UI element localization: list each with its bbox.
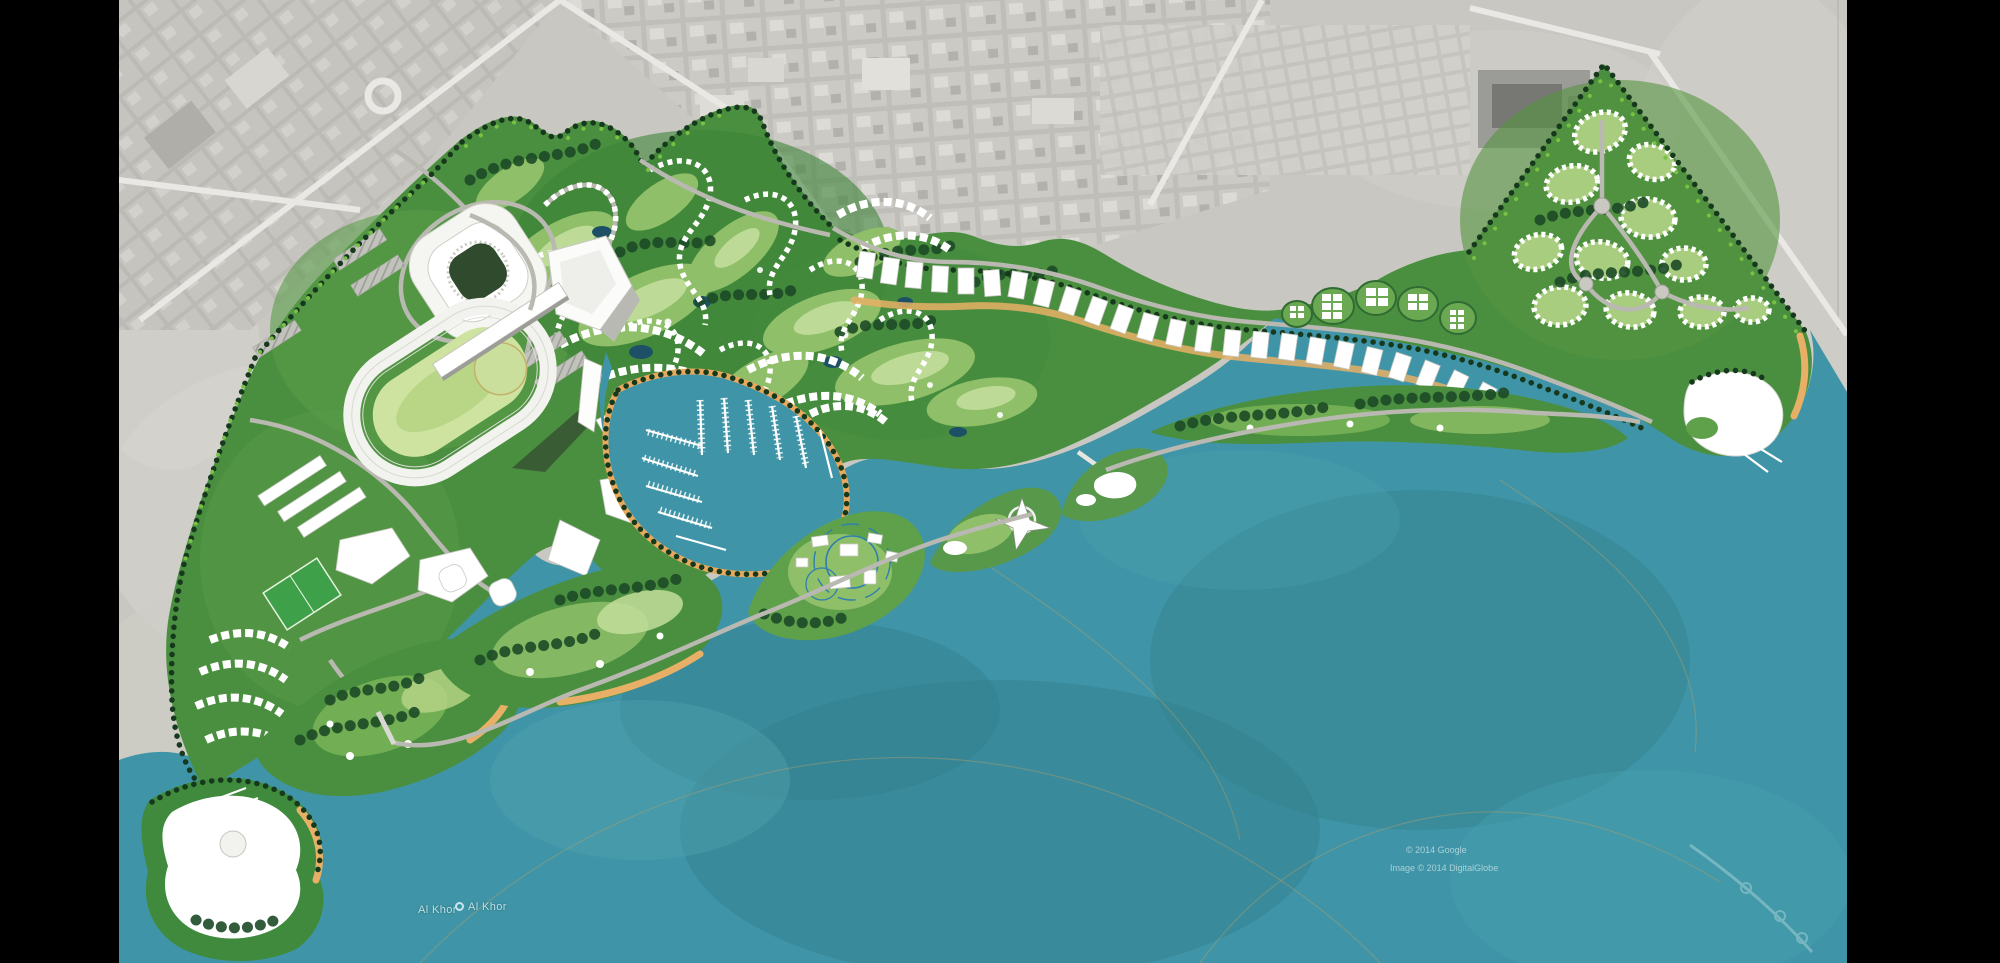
- place-label-al-khor-secondary: Al Khor: [468, 901, 507, 913]
- letterbox-right: [1847, 0, 2000, 963]
- image-viewer-stage: Al Khor Al Khor © 2014 Google Image © 20…: [0, 0, 2000, 963]
- place-marker-icon: [455, 902, 464, 911]
- place-label-al-khor-primary: Al Khor: [418, 904, 457, 916]
- letterbox-left: [0, 0, 119, 963]
- island-resort-southwest: [142, 778, 324, 961]
- map-credit-digitalglobe: Image © 2014 DigitalGlobe: [1390, 863, 1498, 873]
- map-canvas: [119, 0, 1847, 963]
- map-credit-google: © 2014 Google: [1406, 845, 1467, 855]
